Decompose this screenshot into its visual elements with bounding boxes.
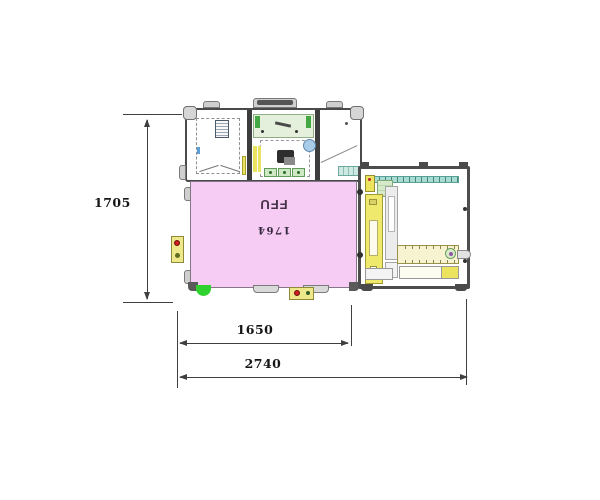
ffu-plenum: FFU 1764	[190, 181, 357, 288]
arrow-right-icon	[460, 374, 468, 380]
guide-slot	[388, 196, 395, 232]
yellow-rail-2	[258, 146, 261, 172]
right-frame-dot-upper	[463, 207, 467, 211]
dim-extension-middle	[351, 305, 352, 346]
red-button-icon	[174, 240, 180, 246]
top-tab-left	[360, 162, 369, 168]
floor-plan-canvas: 1705	[0, 0, 600, 500]
io-dot	[368, 178, 371, 181]
actuator-center-dot	[449, 252, 453, 256]
blue-port-marker	[197, 147, 200, 154]
green-clamp-left	[255, 116, 260, 128]
chamber-module-1	[264, 168, 277, 177]
green-indicator-blob	[196, 285, 211, 296]
module-dot	[297, 171, 300, 174]
ffu-sublabel: 1764	[191, 224, 356, 235]
ffu-label: FFU	[191, 197, 356, 212]
dim-height-label: 1705	[94, 195, 130, 210]
blue-port-circle	[303, 139, 316, 152]
right-bay-diagonal	[321, 145, 358, 163]
chamber-module-2	[278, 168, 291, 177]
panel-dot-left	[261, 130, 264, 133]
teal-connector-box	[338, 166, 360, 176]
corner-bracket-tr	[350, 106, 364, 120]
chamber-module-3	[292, 168, 305, 177]
spindle-arm	[284, 157, 295, 165]
arrow-down-icon	[144, 292, 150, 300]
foot-left	[361, 284, 373, 291]
dim-extension-right	[466, 299, 467, 385]
dim-height-extension-bottom	[123, 302, 173, 303]
machine-enclosure	[185, 108, 362, 182]
green-button-icon	[175, 253, 180, 258]
dim-width-total-arrow	[180, 377, 467, 378]
left-mount-tab-upper	[184, 187, 191, 201]
dim-extension-left	[177, 311, 178, 388]
chamber-wall-left	[247, 110, 252, 180]
yellow-rail-left-bay	[242, 156, 246, 175]
dim-width-inner-arrow	[180, 343, 348, 344]
estop-box-left	[171, 236, 184, 263]
top-lifting-tab-left	[203, 101, 220, 108]
green-button-icon	[306, 291, 310, 295]
top-tab-right	[459, 162, 468, 168]
lift-block-top	[369, 199, 377, 205]
side-tab-left	[179, 165, 186, 180]
green-clamp-right	[306, 116, 311, 128]
module-dot	[269, 171, 272, 174]
lower-left-plate	[365, 268, 393, 280]
module-dot	[283, 171, 286, 174]
top-lifting-tab-right	[326, 101, 343, 108]
top-tab-center	[419, 162, 428, 168]
panel-dot-right	[295, 130, 298, 133]
vent-panel	[215, 120, 229, 138]
arrow-left-icon	[179, 374, 187, 380]
dim-height-arrow	[147, 120, 148, 299]
yellow-rail-1	[253, 146, 257, 172]
left-frame-dot-upper	[357, 189, 363, 195]
right-bay-dot	[345, 122, 348, 125]
arrow-right-icon	[341, 340, 349, 346]
left-frame-dot-lower	[357, 252, 363, 258]
estop-box-bottom	[289, 287, 314, 300]
dim-height-extension-top	[123, 114, 182, 115]
dim-width-total-label: 2740	[213, 356, 313, 371]
dim-width-inner-label: 1650	[205, 322, 305, 337]
lower-slide-yellow-end	[441, 266, 459, 279]
corner-bracket-tl	[183, 106, 197, 120]
top-center-bar	[257, 100, 293, 105]
arrow-left-icon	[179, 340, 187, 346]
red-button-icon	[294, 290, 300, 296]
arrow-up-icon	[144, 119, 150, 127]
actuator-ticks-bottom	[399, 260, 457, 263]
bottom-mount-tab-left	[253, 285, 279, 293]
actuator-shaft	[457, 250, 471, 259]
foot-right	[455, 284, 467, 291]
right-frame-dot-lower	[463, 259, 467, 263]
lift-slot	[369, 220, 378, 256]
loader-module	[358, 166, 470, 289]
